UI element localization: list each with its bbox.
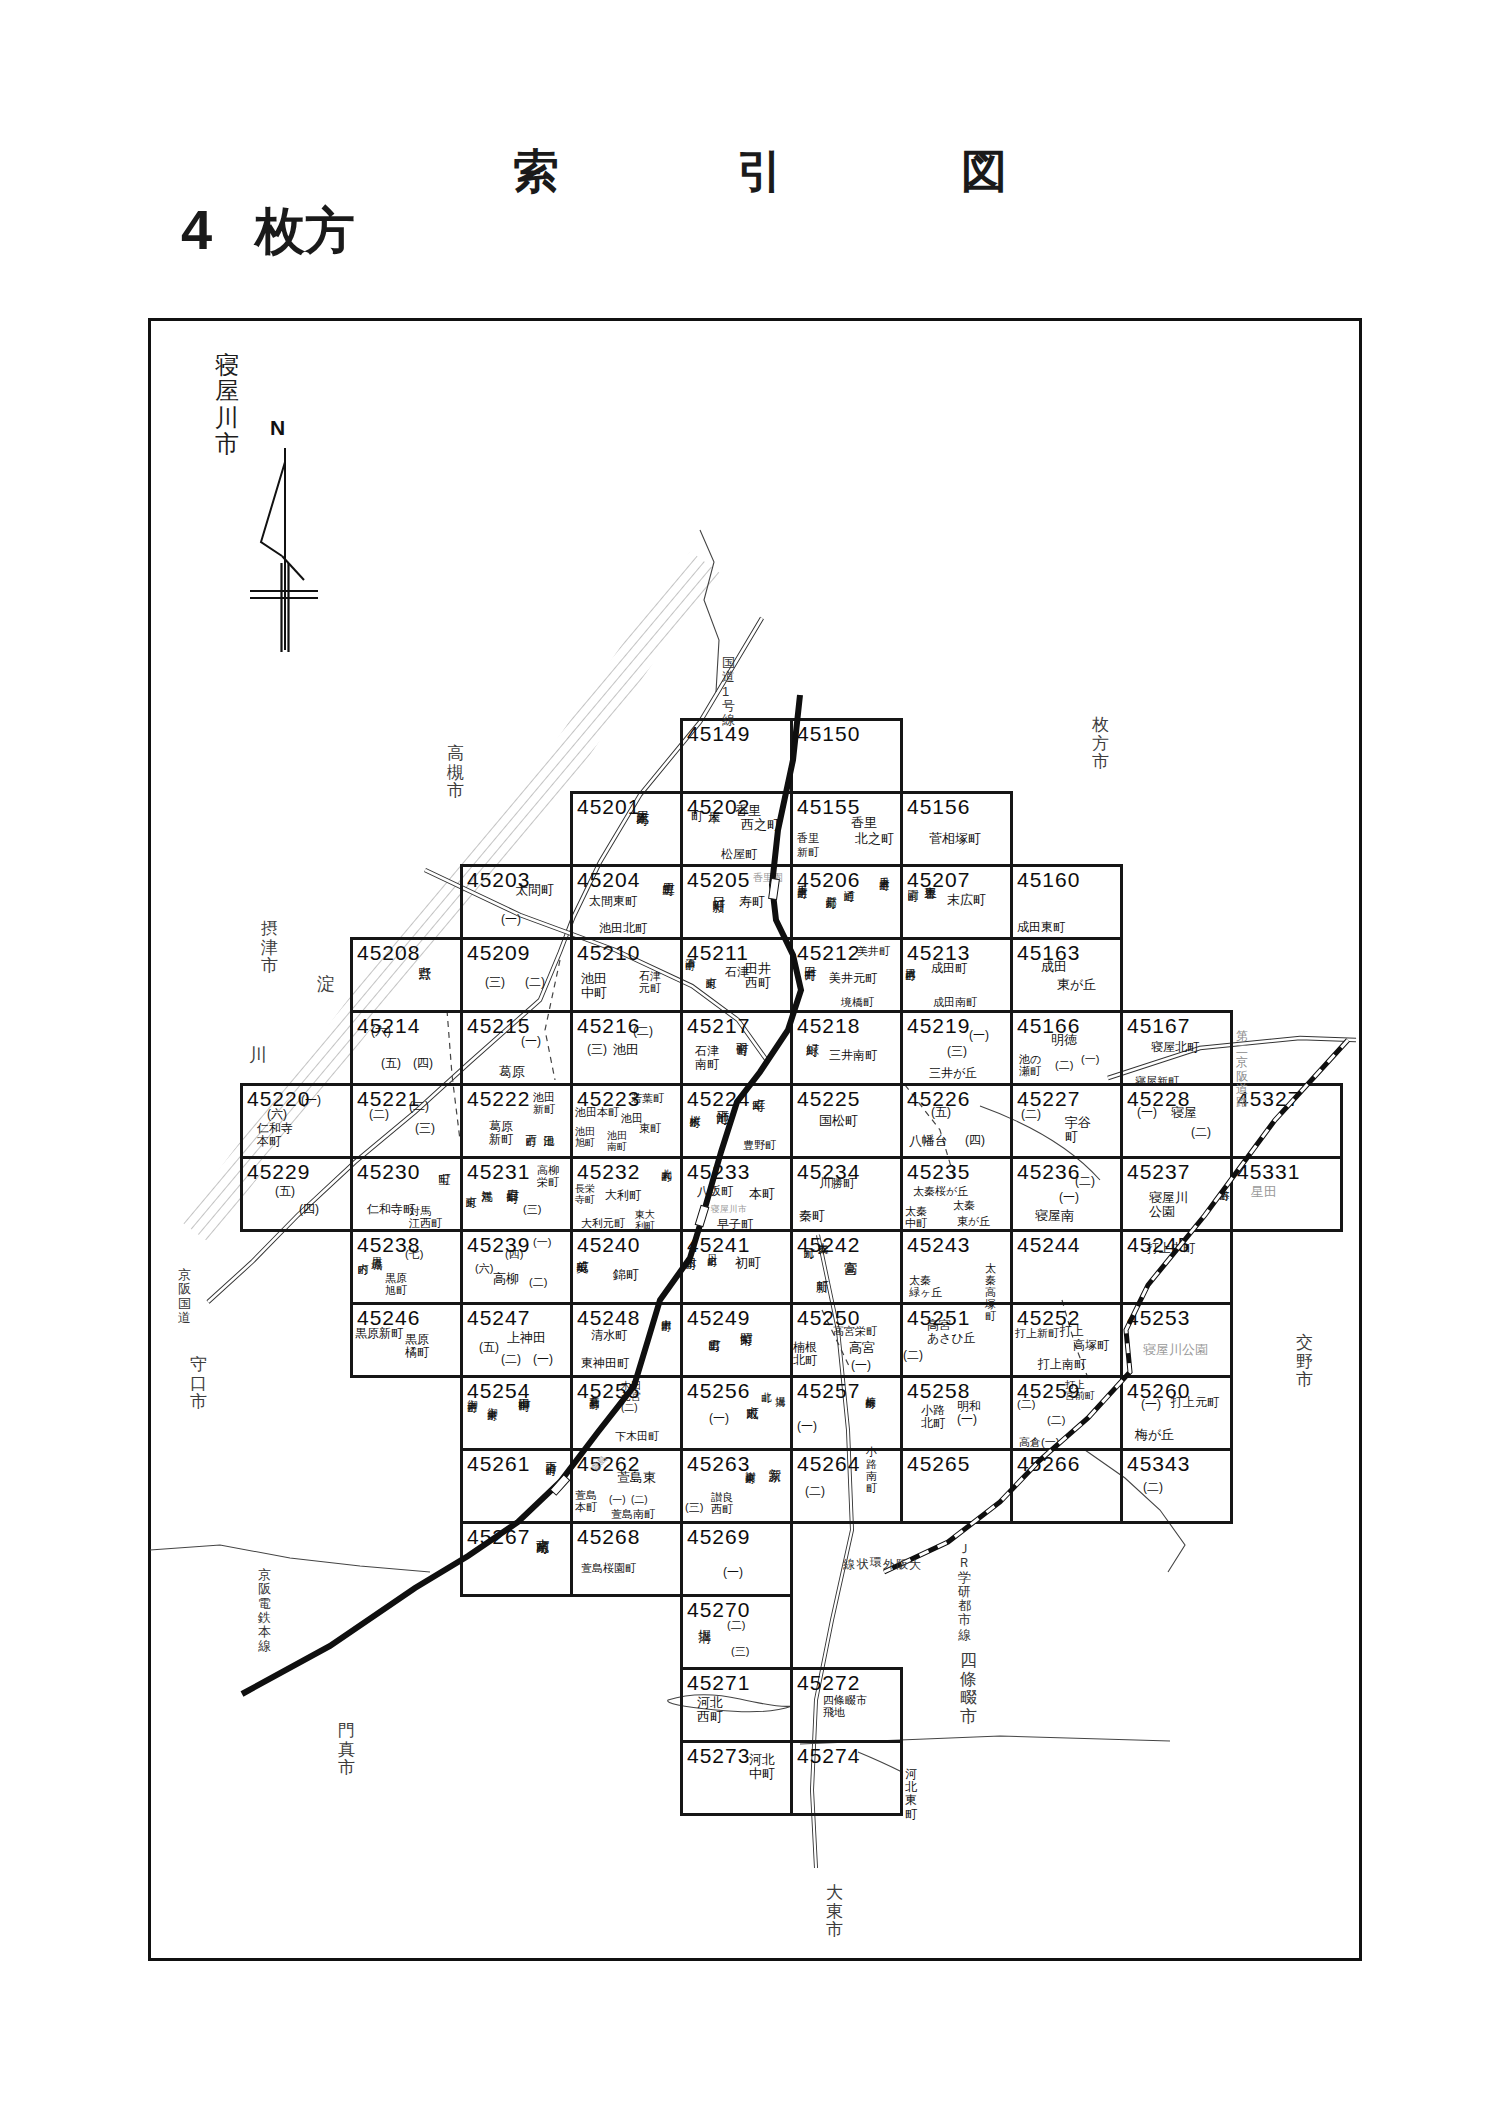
map-cell-45223[interactable]: 45223若葉町池田本町池田東町池田 旭町池田 南町 — [570, 1083, 683, 1159]
cell-number: 45229 — [247, 1160, 310, 1184]
town-label: 幸町 — [751, 1088, 765, 1090]
map-cell-45240[interactable]: 45240成美町錦町 — [570, 1229, 683, 1305]
map-cell-45265[interactable]: 45265 — [900, 1448, 1013, 1524]
town-label: 高柳 — [493, 1272, 519, 1286]
town-label: (二) — [501, 1353, 521, 1366]
map-cell-45218[interactable]: 45218緑町三井南町 — [790, 1010, 903, 1086]
town-label: 高宮 あさひ丘 — [927, 1319, 976, 1345]
town-label: 町 — [691, 810, 703, 823]
town-label: 中神田町 — [517, 1388, 530, 1392]
map-cell-45259[interactable]: 45259打上 宮前町(二)(二)高倉(一) — [1010, 1375, 1123, 1451]
map-cell-45270[interactable]: 45270堀溝(二)(三) — [680, 1594, 793, 1670]
town-label: 高塚町 — [1073, 1339, 1109, 1352]
town-label: (五) — [931, 1106, 951, 1119]
map-cell-45257[interactable]: 45257楠根南町(一) — [790, 1375, 903, 1451]
town-label: 御幸西町 — [467, 1392, 478, 1396]
town-label: (六) — [475, 1262, 493, 1274]
map-cell-45213[interactable]: 45213成田西町成田町成田南町 — [900, 937, 1013, 1013]
map-cell-45262[interactable]: 45262萱島東萱島 本町(一)(二)萱島南町萱島 — [570, 1448, 683, 1524]
town-label: 中木田町 — [661, 1311, 672, 1315]
town-label: 錦町 — [613, 1268, 639, 1282]
town-label: (二) — [1191, 1126, 1211, 1139]
map-cell-45208[interactable]: 45208点野 — [350, 937, 463, 1013]
town-label: 堀溝 — [775, 1388, 786, 1390]
map-cell-45273[interactable]: 45273河北 中町 — [680, 1740, 793, 1816]
town-label: 宝町 — [437, 1163, 450, 1165]
map-cell-45203[interactable]: 45203太間町(一) — [460, 864, 573, 940]
town-label: 下神田町 — [545, 1453, 557, 1457]
town-label: 寝屋北町 — [1151, 1041, 1199, 1054]
town-label: 太秦 緑ヶ丘 — [909, 1274, 942, 1298]
map-cell-45244[interactable]: 45244 — [1010, 1229, 1123, 1305]
map-cell-45215[interactable]: 45215(一)葛原 — [460, 1010, 573, 1086]
town-label: 三井が丘 — [929, 1067, 977, 1080]
map-cell-45231[interactable]: 45231東町対馬江春日町高柳 栄町(三) — [460, 1156, 573, 1232]
cell-number: 45263 — [687, 1452, 750, 1476]
town-label: 萱島信和町 — [589, 1388, 600, 1393]
cell-number: 45272 — [797, 1671, 860, 1695]
town-label: 河北東町 — [905, 1768, 917, 1821]
town-label: 元町 — [803, 1238, 815, 1240]
town-label: (一) — [969, 1029, 989, 1042]
map-cell-45241[interactable]: 45241木田町日之出町初町 — [680, 1229, 793, 1305]
town-label: 東町 — [465, 1187, 477, 1189]
town-label: 池田 中町 — [581, 972, 607, 1001]
city-label: 川 — [249, 1046, 269, 1066]
town-label: 太間町 — [515, 883, 554, 897]
town-label: 池田 南町 — [607, 1130, 627, 1152]
map-cell-45210[interactable]: 45210池田 中町石津 元町 — [570, 937, 683, 1013]
town-label: (五) — [275, 1185, 295, 1198]
town-label: (二) — [525, 976, 545, 989]
town-label: 楠根 北町 — [793, 1341, 817, 1367]
town-label: 田井町 — [803, 958, 816, 961]
cell-number: 45261 — [467, 1452, 530, 1476]
town-label: 太秦桜が丘 — [913, 1185, 968, 1197]
town-label: 東香里 — [923, 877, 936, 880]
town-label: 日新町 — [711, 887, 725, 890]
cell-number: 45242 — [797, 1233, 860, 1257]
city-label: 淀 — [317, 975, 337, 995]
town-label: 太秦高塚町 — [985, 1262, 996, 1322]
cell-number: 45249 — [687, 1306, 750, 1330]
cell-number: 45232 — [577, 1160, 640, 1184]
town-label: 太間東町 — [589, 895, 637, 908]
town-label: 黒原城 — [371, 1248, 383, 1251]
town-label: (三) — [947, 1045, 967, 1058]
town-label: 池田本町 — [575, 1106, 619, 1118]
town-label: 打上中町 — [1147, 1242, 1195, 1255]
town-label: 平池町 — [715, 1100, 729, 1103]
town-label: (二) — [1047, 1414, 1065, 1426]
map-cell-45211[interactable]: 45211石津中町東町石津田井 西町 — [680, 937, 793, 1013]
map-cell-45255[interactable]: 45255萱島信和町木田 元宮 (二)下木田町 — [570, 1375, 683, 1451]
town-label: (三) — [587, 1043, 607, 1056]
town-label: 寿町 — [739, 895, 765, 909]
cell-number: 45253 — [1127, 1306, 1190, 1330]
town-label: 香里 — [851, 816, 877, 830]
town-label: 萱島東 — [617, 1471, 656, 1485]
map-cell-45220[interactable]: 45220(一)(六)仁和寺 本町 — [240, 1083, 353, 1159]
cell-number: 45167 — [1127, 1014, 1190, 1038]
town-label: (三) — [485, 976, 505, 989]
map-cell-45238[interactable]: 45238内町黒原城(七)黒原 旭町 — [350, 1229, 463, 1305]
map-cell-45274[interactable]: 45274 — [790, 1740, 903, 1816]
map-cell-45167[interactable]: 45167寝屋北町寝屋新町 — [1120, 1010, 1233, 1086]
town-label: 寝屋南 — [1035, 1209, 1074, 1223]
map-cell-45225[interactable]: 45225国松町 — [790, 1083, 903, 1159]
town-label: (七) — [405, 1248, 423, 1260]
town-label: 新町 — [797, 846, 819, 858]
road-label: 国道1号線 — [722, 656, 735, 727]
town-label: (二) — [409, 1100, 429, 1113]
town-label: 萱島南町 — [611, 1508, 655, 1520]
town-label: 成田東町 — [1017, 921, 1065, 934]
cell-number: 45256 — [687, 1379, 750, 1403]
map-cell-45206[interactable]: 45206香里南之町郡元町通町香里本通町 — [790, 864, 903, 940]
town-label: 豊野町 — [743, 1139, 776, 1151]
town-label: 堀溝 — [697, 1619, 711, 1621]
town-label: 香里 — [797, 832, 819, 844]
map-cell-45267[interactable]: 45267南水苑町 — [460, 1521, 573, 1597]
map-cell-45256[interactable]: 45256(一)大成町北町堀溝 — [680, 1375, 793, 1451]
map-cell-45163[interactable]: 45163成田東が丘 — [1010, 937, 1123, 1013]
cell-number: 45208 — [357, 941, 420, 965]
map-cell-45226[interactable]: 45226(五)八幡台(四) — [900, 1083, 1013, 1159]
map-cell-45229[interactable]: 45229(五)(四) — [240, 1156, 353, 1232]
map-cell-45155[interactable]: 45155香里北之町香里新町 — [790, 791, 903, 867]
town-label: 南水苑町 — [535, 1528, 549, 1532]
town-label: 明徳 — [1051, 1033, 1077, 1047]
cell-number: 45236 — [1017, 1160, 1080, 1184]
town-label: 上神田 — [507, 1331, 546, 1345]
town-label: 宇谷 町 — [1065, 1116, 1091, 1145]
map-cell-45235[interactable]: 45235太秦桜が丘太秦 中町太秦東が丘 — [900, 1156, 1013, 1232]
town-label: 大谷町 — [1219, 1181, 1230, 1184]
town-label: 境橋町 — [841, 996, 874, 1008]
cell-number: 45225 — [797, 1087, 860, 1111]
town-label: 池田北町 — [599, 922, 647, 935]
town-label: 高柳 栄町 — [537, 1164, 559, 1188]
town-label: 葛原 — [499, 1065, 525, 1079]
town-label: (二) — [727, 1619, 745, 1631]
map-cell-45227[interactable]: 45227(二)宇谷 町 — [1010, 1083, 1123, 1159]
town-label: (六) — [267, 1108, 287, 1121]
cell-number: 45156 — [907, 795, 970, 819]
sheet-number: 4 — [181, 202, 212, 258]
town-label: 長栄 寺町 — [575, 1183, 595, 1205]
map-cell-45261[interactable]: 45261下神田町 — [460, 1448, 573, 1524]
map-cell-45221[interactable]: 45221(二)(二)(三) — [350, 1083, 463, 1159]
town-label: (一) — [797, 1420, 817, 1433]
town-label: 池の 瀬町 — [1019, 1053, 1041, 1077]
town-label: (一) — [709, 1412, 729, 1425]
cell-number: 45233 — [687, 1160, 750, 1184]
index-map-page: 索引図 4 枚方 — [0, 0, 1500, 2116]
map-cell-45243[interactable]: 45243太秦 緑ヶ丘 — [900, 1229, 1013, 1305]
rail-label: ＪＲ学研都市線 — [958, 1542, 971, 1642]
town-label: 讃良 西町 — [711, 1491, 733, 1515]
map-cell-45207[interactable]: 45207園町東香里末広町 — [900, 864, 1013, 940]
road-label: 第二京阪道路 — [1236, 1030, 1248, 1109]
town-label: (三) — [731, 1645, 749, 1657]
map-cell-45268[interactable]: 45268萱島桜園町 — [570, 1521, 683, 1597]
town-label: 寝屋川 公園 — [1149, 1191, 1188, 1220]
town-label: 緑町 — [805, 1033, 819, 1035]
map-cell-45263[interactable]: 45263(三)讃良 西町讃良東町新家 — [680, 1448, 793, 1524]
map-cell-45250[interactable]: 45250高宮栄町楠根 北町高宮(一) — [790, 1302, 903, 1378]
cell-number: 45216 — [577, 1014, 640, 1038]
map-cell-45222[interactable]: 45222池田 新町葛原 新町西町池田 — [460, 1083, 573, 1159]
cell-number: 45222 — [467, 1087, 530, 1111]
town-label: 石津 元町 — [639, 970, 661, 994]
map-cell-45228[interactable]: 45228(一)寝屋(二) — [1120, 1083, 1233, 1159]
cell-number: 45264 — [797, 1452, 860, 1476]
map-cell-45156[interactable]: 45156菅相塚町 — [900, 791, 1013, 867]
town-label: (六) — [371, 1025, 391, 1038]
map-cell-45224[interactable]: 45224桜木町平池町幸町豊野町 — [680, 1083, 793, 1159]
town-label: 木屋 — [707, 802, 720, 804]
town-label: 成美町 — [575, 1250, 588, 1253]
town-label: 成田西町 — [905, 960, 916, 964]
map-cell-45214[interactable]: 45214(六)(五)(四) — [350, 1010, 463, 1086]
rail-label: 京阪電鉄本線 — [258, 1568, 271, 1654]
town-label: 通町 — [843, 881, 855, 883]
town-label: 東町 — [639, 1122, 661, 1134]
cell-number: 45247 — [467, 1306, 530, 1330]
town-label: 音羽町 — [735, 1033, 748, 1036]
town-label: 新町 — [815, 1270, 828, 1272]
town-label: 葛原 新町 — [489, 1120, 513, 1146]
town-label: 東が丘 — [1057, 978, 1096, 992]
town-label: 高宮 — [843, 1250, 857, 1252]
map-cell-45264[interactable]: 45264(二) — [790, 1448, 903, 1524]
town-label: (一) — [1137, 1106, 1157, 1119]
town-label: (一) — [533, 1236, 551, 1248]
town-label: 打上南町 — [1038, 1358, 1086, 1371]
town-label: 東大 利町 — [635, 1209, 655, 1231]
map-cell-45271[interactable]: 45271河北 西町 — [680, 1667, 793, 1743]
town-label: 八坂町 — [697, 1185, 733, 1198]
town-label: 点野 — [417, 956, 431, 958]
town-label: 大成町 — [745, 1396, 758, 1399]
town-label: 太秦 中町 — [905, 1205, 927, 1229]
town-label: 池田 — [613, 1043, 639, 1057]
town-label: 打上 宮前町 — [1065, 1379, 1095, 1401]
cell-number: 45149 — [687, 722, 750, 746]
town-label: 川勝町 — [819, 1177, 855, 1190]
city-label: 摂津市 — [261, 920, 280, 976]
map-cell-45233[interactable]: 45233八坂町本町寝屋川市早子町 — [680, 1156, 793, 1232]
cell-number: 45248 — [577, 1306, 640, 1330]
town-label: 高倉(一) — [1019, 1436, 1059, 1448]
map-cell-45149[interactable]: 45149 — [680, 718, 793, 794]
town-label: 明和 (一) — [957, 1400, 981, 1426]
city-label: 枚方市 — [1092, 716, 1111, 772]
map-cell-45260[interactable]: 45260(一)打上元町梅が丘 — [1120, 1375, 1233, 1451]
town-label: 黒原新町 — [355, 1327, 403, 1340]
town-label: 成田南町 — [933, 996, 977, 1008]
town-label: (四) — [299, 1203, 319, 1216]
town-label: 石津 南町 — [695, 1045, 719, 1071]
city-label: 交野市 — [1296, 1334, 1315, 1390]
town-label: 郡元町 — [825, 887, 837, 890]
town-label: 讃良東町 — [745, 1463, 756, 1467]
town-label: 若葉町 — [631, 1092, 664, 1104]
map-cell-45150[interactable]: 45150 — [790, 718, 903, 794]
town-label: 菅相塚町 — [929, 832, 981, 846]
map-cell-45219[interactable]: 45219(一)(三)三井が丘 — [900, 1010, 1013, 1086]
town-label: 楠根南町 — [865, 1388, 876, 1392]
map-cell-45343[interactable]: 45343(二) — [1120, 1448, 1233, 1524]
town-label: 萱島 本町 — [575, 1489, 597, 1513]
map-cell-45230[interactable]: 45230宝町仁和寺町対馬 江西町 — [350, 1156, 463, 1232]
town-label: 初町 — [735, 1256, 761, 1270]
cell-number: 45274 — [797, 1744, 860, 1768]
map-cell-45258[interactable]: 45258小路 北町明和 (一) — [900, 1375, 1013, 1451]
town-label: (一) — [1141, 1398, 1161, 1411]
town-label: 秦町 — [799, 1209, 825, 1223]
map-cell-45331[interactable]: 45331星田 — [1230, 1156, 1343, 1232]
cell-number: 45257 — [797, 1379, 860, 1403]
map-cell-45247[interactable]: 45247(五)上神田(二)(一) — [460, 1302, 573, 1378]
city-label: 門真市 — [338, 1722, 357, 1778]
town-label: 池田 旭町 — [575, 1126, 595, 1148]
town-label: 本町 — [749, 1187, 775, 1201]
town-label: 東神田町 — [581, 1357, 629, 1370]
town-label: (三) — [523, 1203, 541, 1215]
map-cell-45266[interactable]: 45266 — [1010, 1448, 1123, 1524]
map-cell-45242[interactable]: 45242元町太秦高宮新町 — [790, 1229, 903, 1305]
town-label: (二) — [1017, 1398, 1035, 1410]
town-label: 出雲町 — [707, 1329, 720, 1332]
town-label: 太秦 — [817, 1234, 829, 1236]
town-label: (一) — [723, 1566, 743, 1579]
city-label: 四條畷市 — [960, 1652, 979, 1727]
map-cell-45252[interactable]: 45252打上新町打上高塚町打上南町 — [1010, 1302, 1123, 1378]
cell-number: 45235 — [907, 1160, 970, 1184]
map-cell-45202[interactable]: 45202香里西之町町木屋松屋町 — [680, 791, 793, 867]
map-cell-45246[interactable]: 45246黒原新町黒原 橘町 — [350, 1302, 463, 1378]
map-cell-45251[interactable]: 45251高宮 あさひ丘(二) — [900, 1302, 1013, 1378]
sheet-title: 枚方 — [255, 206, 355, 256]
cell-number: 45267 — [467, 1525, 530, 1549]
town-label: (四) — [505, 1248, 523, 1260]
city-label: 大東市 — [826, 1884, 845, 1940]
map-cell-45166[interactable]: 45166明徳池の 瀬町(二)(一) — [1010, 1010, 1123, 1086]
town-label: 打上元町 — [1171, 1396, 1219, 1409]
map-cell-45232[interactable]: 45232長栄 寺町大利町北大利町大利元町東大 利町 — [570, 1156, 683, 1232]
town-label: 対馬 江西町 — [409, 1205, 442, 1229]
town-label: 黒原 旭町 — [385, 1272, 407, 1296]
town-label: 打上 — [1060, 1325, 1084, 1338]
map-cell-45269[interactable]: 45269(一) — [680, 1521, 793, 1597]
town-label: (二) — [805, 1485, 825, 1498]
cell-number: 45212 — [797, 941, 860, 965]
town-label: 四條畷市 飛地 — [823, 1694, 867, 1718]
map-cell-45239[interactable]: 45239(一)(四)(六)高柳(二) — [460, 1229, 573, 1305]
cell-number: 45268 — [577, 1525, 640, 1549]
town-label: 高宮 — [849, 1341, 875, 1355]
cell-number: 45269 — [687, 1525, 750, 1549]
town-label: 国松町 — [819, 1114, 858, 1128]
town-label: (四) — [413, 1057, 433, 1070]
map-cell-45216[interactable]: 45216(三)池田(二) — [570, 1010, 683, 1086]
map-cell-45245[interactable]: 45245打上中町 — [1120, 1229, 1233, 1305]
cell-number: 45243 — [907, 1233, 970, 1257]
map-cell-45160[interactable]: 45160成田東町 — [1010, 864, 1123, 940]
map-cell-45236[interactable]: 45236(二)(一)寝屋南 — [1010, 1156, 1123, 1232]
town-label: 小路南町 — [866, 1446, 877, 1494]
map-cell-45254[interactable]: 45254御幸西町御幸東町中神田町 — [460, 1375, 573, 1451]
town-label: (二) — [1021, 1108, 1041, 1121]
town-label: 成田町 — [931, 962, 967, 975]
town-label: 高宮栄町 — [833, 1325, 877, 1337]
cell-number: 45265 — [907, 1452, 970, 1476]
town-label: 清水町 — [591, 1329, 627, 1342]
town-label: (一) — [851, 1359, 871, 1372]
cell-number: 45343 — [1127, 1452, 1190, 1476]
town-label: 御幸東町 — [487, 1400, 498, 1404]
map-cell-45201[interactable]: 45201木屋元町 — [570, 791, 683, 867]
town-label: (二) — [369, 1108, 389, 1121]
town-label: (二) — [631, 1494, 648, 1505]
map-cell-45249[interactable]: 45249出雲町昭栄町 — [680, 1302, 793, 1378]
town-label: 美井町 — [857, 945, 890, 957]
cell-number: 45241 — [687, 1233, 750, 1257]
town-label: (二) — [529, 1276, 547, 1288]
town-label: 太秦 — [953, 1199, 975, 1211]
town-label: 池田 新町 — [533, 1091, 555, 1115]
town-label: (一) — [533, 1353, 553, 1366]
map-cell-45204[interactable]: 45204豊里町太間東町池田北町 — [570, 864, 683, 940]
cell-number: 45160 — [1017, 868, 1080, 892]
town-label: 黒原 橘町 — [405, 1333, 429, 1359]
region-label: 寝屋川市 — [215, 352, 241, 458]
town-label: (二) — [633, 1025, 653, 1038]
town-label: (一) — [301, 1094, 321, 1107]
town-label: 池田 — [543, 1126, 555, 1128]
town-label: 西之町 — [741, 818, 780, 832]
cell-number: 45266 — [1017, 1452, 1080, 1476]
map-cell-45272[interactable]: 45272四條畷市 飛地 — [790, 1667, 903, 1743]
map-cell-45248[interactable]: 45248清水町東神田町中木田町 — [570, 1302, 683, 1378]
map-cell-45234[interactable]: 45234川勝町秦町 — [790, 1156, 903, 1232]
town-label: (一) — [521, 1035, 541, 1048]
cell-number: 45211 — [687, 941, 749, 965]
town-label: 木屋元町 — [635, 800, 649, 804]
town-label: 西町 — [525, 1126, 537, 1128]
map-cell-45212[interactable]: 45212田井町美井元町美井町境橋町 — [790, 937, 903, 1013]
town-label: 大利元町 — [581, 1217, 625, 1229]
town-label: (一) — [609, 1494, 626, 1505]
map-cell-45205[interactable]: 45205日新町寿町香里園 — [680, 864, 793, 940]
map-cell-45209[interactable]: 45209(三)(二) — [460, 937, 573, 1013]
town-label: 香里園 — [753, 872, 783, 883]
town-label: 新家 — [767, 1457, 781, 1459]
town-label: 田井 西町 — [745, 962, 771, 991]
town-label: 寝屋 — [1171, 1106, 1197, 1120]
town-label: 下木田町 — [615, 1430, 659, 1442]
cell-number: 45204 — [577, 868, 640, 892]
town-label: 八幡台 — [909, 1134, 948, 1148]
town-label: 末広町 — [947, 893, 986, 907]
town-label: 香里南之町 — [797, 877, 808, 882]
map-cell-45253[interactable]: 45253寝屋川公園 — [1120, 1302, 1233, 1378]
map-cell-45217[interactable]: 45217石津 南町音羽町 — [680, 1010, 793, 1086]
town-label: 打上新町 — [1015, 1327, 1059, 1339]
map-cell-45237[interactable]: 45237寝屋川 公園大谷町 — [1120, 1156, 1233, 1232]
